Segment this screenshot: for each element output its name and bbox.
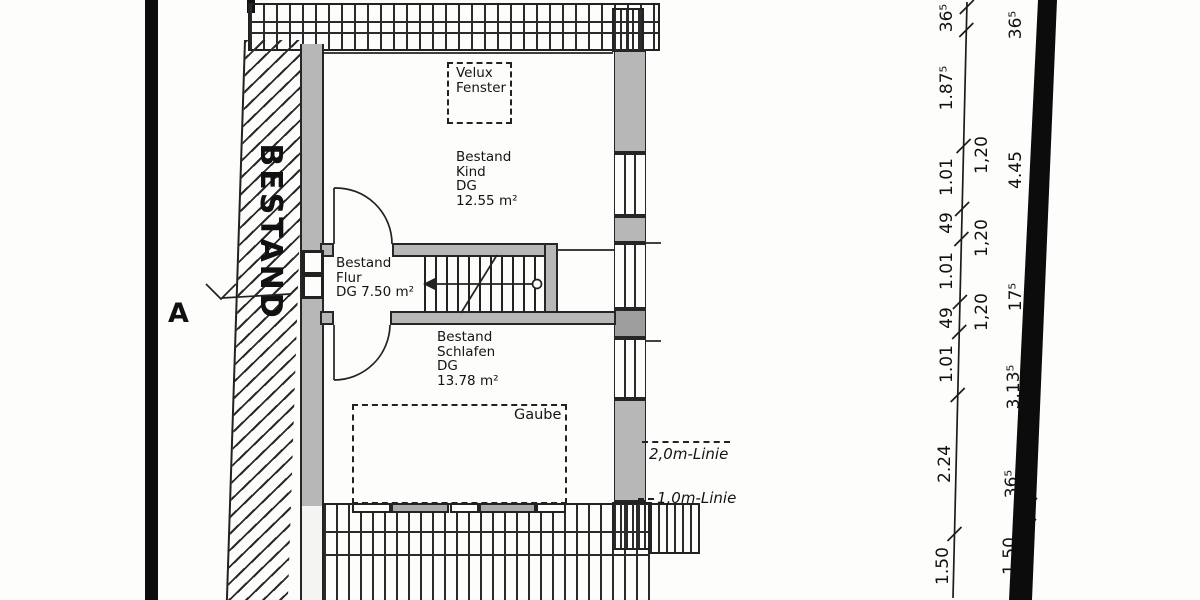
- roof-post-bottom: [612, 502, 652, 550]
- velux-label: Velux Fenster: [456, 66, 506, 95]
- 2m-line-dashed: [642, 441, 730, 443]
- dim-tick: [959, 23, 973, 37]
- dim-tick: [960, 0, 974, 14]
- dim-label: 1,20: [973, 120, 991, 190]
- dim-label: 1.87⁵: [938, 53, 956, 123]
- existing-wall-inner-face-lower: [300, 506, 324, 600]
- existing-wall-label: BESTAND: [254, 147, 288, 317]
- interior-wall: [390, 311, 616, 325]
- scan-edge-right: [1000, 0, 1060, 600]
- gaube-window-sill: [536, 503, 566, 513]
- wall-junction-block: [615, 309, 645, 338]
- room-label-kind: Bestand Kind DG 12.55 m²: [456, 150, 518, 208]
- roof-band-line: [250, 21, 658, 23]
- window-glazing-line: [634, 340, 636, 397]
- window-glazing-line: [634, 245, 636, 307]
- stair-side-wall: [544, 243, 558, 315]
- right-wall-pier: [615, 50, 645, 153]
- shaft-symbol: [302, 250, 324, 275]
- interior-wall: [392, 243, 558, 257]
- 1m-line-dashed: [638, 498, 654, 500]
- window-glazing-line: [634, 155, 636, 214]
- window: [615, 153, 645, 216]
- roof-post-top: [612, 8, 644, 52]
- dim-tick: [954, 232, 968, 246]
- window-glazing-line: [624, 340, 626, 397]
- dim-label: 1,20: [973, 277, 991, 347]
- door-swing-kind: [334, 188, 392, 244]
- window-glazing-line: [624, 155, 626, 214]
- gaube-window-sill: [479, 503, 536, 513]
- stair-treads: [424, 257, 545, 311]
- scan-edge-left: [145, 0, 158, 600]
- lower-roof-line: [324, 554, 650, 556]
- 1m-line-label: 1,0m-Linie: [657, 489, 736, 507]
- section-arrow-icon: [206, 284, 236, 299]
- roof-band-line: [250, 32, 658, 34]
- gaube-window-sill: [450, 503, 479, 513]
- shaft-symbol: [302, 274, 324, 299]
- window: [615, 338, 645, 399]
- dim-label: 1,20: [973, 203, 991, 273]
- lower-roof-dash: [548, 561, 550, 600]
- dim-label: 2.24: [936, 429, 954, 499]
- room-label-flur: Bestand Flur DG 7.50 m²: [336, 256, 414, 300]
- window-glazing-line: [624, 245, 626, 307]
- dim-tick: [957, 139, 971, 153]
- dim-tick: [955, 202, 969, 216]
- 2m-line-label: 2,0m-Linie: [649, 445, 728, 463]
- lower-roof-dash: [602, 561, 604, 600]
- lower-roof-line: [324, 531, 650, 533]
- floor-plan-scan: BESTAND A Velux Fenster Bestand Kind DG …: [0, 0, 1200, 600]
- gaube-window-sill: [391, 503, 449, 513]
- dim-label: 1.01: [938, 329, 956, 399]
- section-marker-label: A: [168, 298, 189, 329]
- gaube-window-sill: [352, 503, 391, 513]
- interior-wall: [320, 311, 334, 325]
- right-wall-pier: [615, 216, 645, 243]
- dim-label: 1.50: [934, 531, 952, 600]
- gaube-label: Gaube: [514, 408, 561, 423]
- right-wall-pier: [615, 399, 645, 502]
- dim-label: 36⁵: [938, 0, 956, 53]
- door-swing-schlafen: [334, 325, 390, 380]
- lower-roof-band: [322, 503, 650, 600]
- room-label-schlafen: Bestand Schlafen DG 13.78 m²: [437, 330, 499, 388]
- window: [615, 243, 645, 309]
- lower-roof-band-right: [648, 503, 700, 554]
